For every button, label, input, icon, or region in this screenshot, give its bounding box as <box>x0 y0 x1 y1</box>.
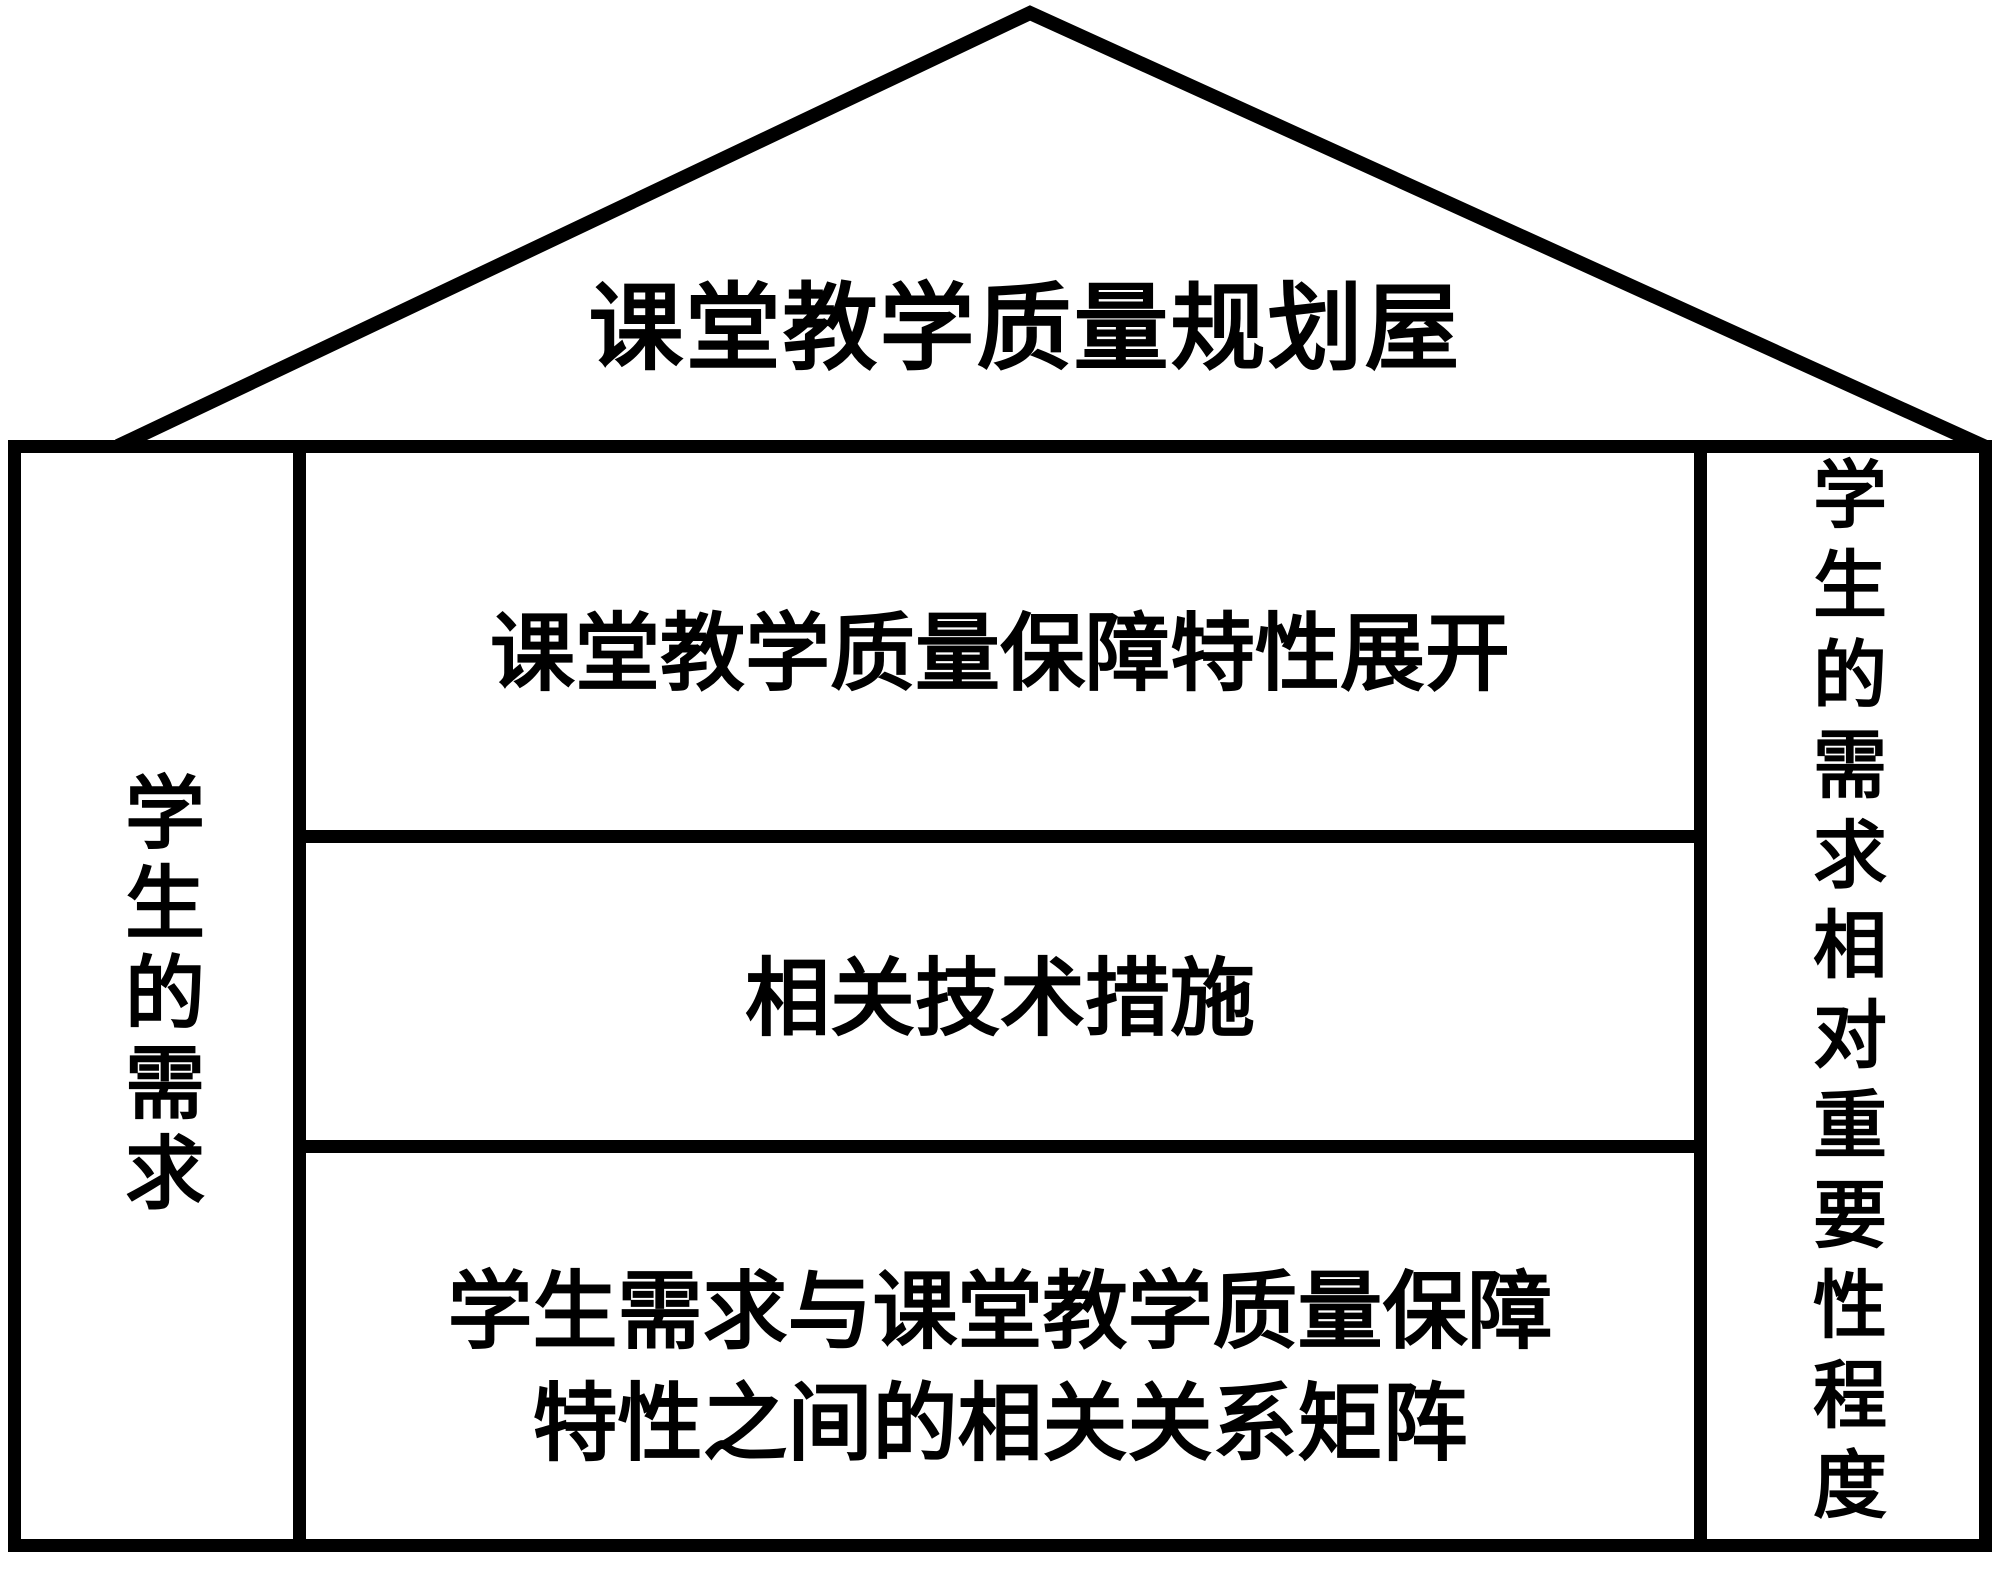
row-characteristics-deployment: 课堂教学质量保障特性展开 <box>306 453 1694 830</box>
row-technical-measures: 相关技术措施 <box>306 843 1694 1140</box>
roof-outline <box>0 0 2000 470</box>
house-of-quality-diagram: 课堂教学质量规划屋 学生的需求 学生的需求相对重要性程度 课堂教学质量保障特性展… <box>0 0 2000 1570</box>
row-technical-measures-label: 相关技术措施 <box>745 944 1255 1056</box>
left-column-divider <box>293 440 306 1552</box>
roof-title: 课堂教学质量规划屋 <box>50 282 2000 377</box>
right-column-divider <box>1694 440 1707 1552</box>
row-divider-1 <box>296 830 1701 843</box>
right-column-label: 学生的需求相对重要性程度 <box>1707 453 1979 1539</box>
row-correlation-matrix-line2: 特性之间的相关关系矩阵 <box>532 1369 1467 1481</box>
left-column-label: 学生的需求 <box>21 453 293 1539</box>
row-divider-2 <box>296 1140 1701 1153</box>
row-correlation-matrix-line1: 学生需求与课堂教学质量保障 <box>447 1257 1552 1369</box>
row-characteristics-deployment-label: 课堂教学质量保障特性展开 <box>490 599 1510 711</box>
row-correlation-matrix: 学生需求与课堂教学质量保障 特性之间的相关关系矩阵 <box>306 1153 1694 1539</box>
